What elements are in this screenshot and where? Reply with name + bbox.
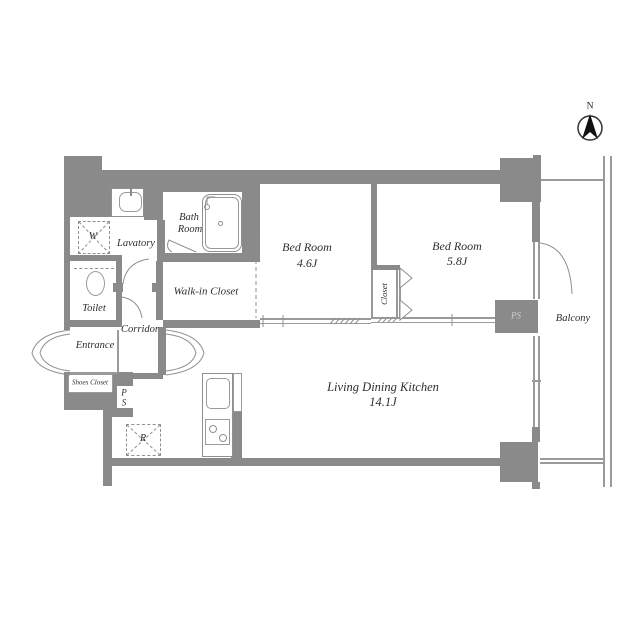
compass-north-label: N (587, 102, 594, 112)
wall (532, 427, 540, 442)
balcony-door-arc (540, 243, 572, 294)
wall (112, 458, 500, 466)
closet-side-line (396, 270, 398, 318)
wall (163, 320, 260, 328)
room-label-ldk: Living Dining Kitchen (327, 381, 439, 394)
stove-burner (209, 425, 217, 433)
room-label-closet: Closet (380, 283, 389, 305)
room-label-lavatory: Lavatory (117, 239, 155, 250)
compass-north-arrow (578, 114, 602, 140)
corridor-door-arc (166, 334, 196, 371)
toilet-tank-line (74, 268, 114, 269)
wall (532, 202, 540, 242)
room-label-shoes-closet: Shoes Closet (72, 380, 108, 387)
balcony-bottom-line (540, 462, 604, 464)
stove-burner (219, 434, 227, 442)
corridor-door-arc (166, 330, 204, 375)
partition-line (371, 317, 495, 319)
room-label-corridor: Corridor (121, 325, 159, 336)
bathtub-drain (218, 221, 223, 226)
label-pipe-space-left-s: S (122, 399, 127, 408)
wall (242, 170, 260, 262)
fixture-label-refrigerator: R (140, 434, 146, 444)
room-area-bedroom-small: 4.6J (297, 257, 317, 269)
kitchen-stove (205, 419, 230, 445)
wall (532, 482, 540, 489)
wall (144, 170, 163, 220)
room-label-walk-in-closet: Walk-in Closet (174, 287, 239, 298)
lavatory-faucet (130, 184, 132, 196)
wall (152, 283, 163, 292)
room-label-toilet: Toilet (82, 304, 106, 315)
ldk-window-line (533, 336, 535, 427)
wall (500, 442, 538, 482)
room-label-bedroom-small: Bed Room (282, 241, 332, 253)
partition-line (260, 323, 371, 324)
room-label-entrance: Entrance (76, 341, 115, 352)
ldk-window-tick (532, 380, 541, 382)
entrance-door-arc (32, 330, 70, 375)
room-label-balcony: Balcony (556, 314, 590, 325)
balcony-bottom-line (540, 458, 604, 460)
entrance-step-line (117, 330, 119, 373)
ldk-window-line (538, 336, 540, 427)
floor-plan-canvas: Bath Room Lavatory Toilet Entrance Corri… (0, 0, 640, 640)
wall (64, 255, 122, 261)
wall (103, 410, 112, 486)
kitchen-sink (206, 378, 230, 409)
wall (157, 253, 260, 262)
wall (116, 261, 122, 326)
room-label-bedroom-large: Bed Room (432, 240, 482, 252)
closet-bifold-mark (400, 268, 412, 288)
lavatory-door-arc (123, 259, 149, 284)
toilet-bowl (86, 271, 105, 296)
partition-line (260, 318, 371, 320)
balcony-edge-line (603, 156, 605, 487)
closet-side-line (399, 270, 401, 318)
wall (371, 184, 377, 265)
wall (533, 155, 541, 202)
closet-side-line (371, 270, 373, 318)
balcony-door-panel (533, 242, 535, 299)
room-area-bedroom-large: 5.8J (447, 255, 467, 267)
room-label-bath-line2: Room (178, 225, 203, 236)
bath-door (168, 240, 196, 252)
room-label-bath-line1: Bath (179, 213, 199, 224)
wall (64, 156, 70, 330)
label-pipe-space-right: PS (511, 312, 521, 321)
label-pipe-space-left-p: P (121, 389, 127, 398)
entrance-door-arc (40, 334, 70, 371)
fixture-label-washer: W (89, 232, 97, 242)
wall (64, 320, 122, 327)
toilet-door-arc (122, 297, 142, 318)
partition-tick (263, 314, 452, 327)
wall (111, 170, 144, 188)
balcony-door-panel (538, 242, 540, 299)
partition-line (371, 322, 495, 323)
wall (158, 327, 166, 375)
balcony-edge-line (610, 156, 612, 487)
kitchen-side-panel (233, 373, 242, 412)
wall (64, 392, 107, 410)
balcony-top-line (541, 179, 603, 181)
room-area-ldk: 14.1J (369, 396, 396, 409)
